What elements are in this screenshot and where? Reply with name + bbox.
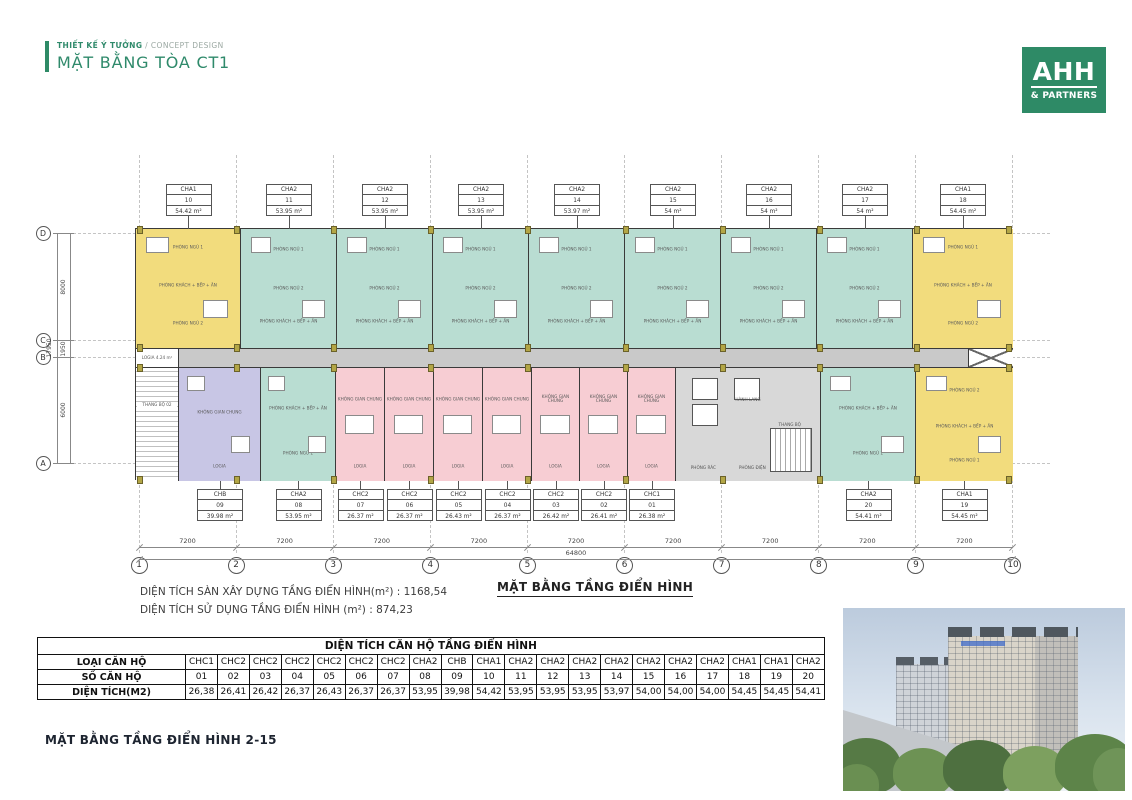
eyebrow-english: / CONCEPT DESIGN [142,41,223,50]
callout-area: 53.95 m² [277,512,321,522]
elevator [692,404,718,426]
dim-tick [53,463,74,464]
unit-callout-13: CHA21353.95 m² [458,184,504,216]
furniture [345,415,375,433]
cell-number-19: 19 [760,670,792,685]
callout-number: 04 [486,501,530,511]
unit-callout-05: CHC20526.43 m² [436,489,482,521]
callout-leader [188,216,189,229]
table-title: DIỆN TÍCH CĂN HỘ TẦNG ĐIỂN HÌNH [38,638,825,655]
furniture [588,415,617,433]
cell-number-03: 03 [249,670,281,685]
column-marker [234,476,240,484]
room-label: PHÒNG KHÁCH + BẾP + ĂN [340,319,429,324]
dim-label-bay: 7200 [168,537,208,545]
callout-area: 26.43 m² [437,512,481,522]
room-label: PHÒNG KHÁCH + BẾP + ĂN [916,284,1010,289]
callout-type: CHC2 [582,490,626,500]
cell-area-10: 54,42 [473,685,505,700]
callout-leader [963,216,964,229]
building-roof-main [948,627,1078,637]
cell-area-04: 26,37 [281,685,313,700]
cell-area-19: 54,45 [760,685,792,700]
cell-type-14: CHA2 [601,655,633,670]
room-label: KHÔNG GIAN CHUNG [629,395,673,405]
eyebrow-vietnamese: THIẾT KẾ Ý TƯỞNG [57,41,142,50]
column-marker [331,476,337,484]
furniture [398,300,421,318]
unit-CHA1-19: PHÒNG NGỦ 2PHÒNG KHÁCH + BẾP + ĂNPHÒNG N… [916,368,1013,481]
core-label: PHÒNG ĐIỆN [728,465,777,470]
apartment-area-table: DIỆN TÍCH CĂN HỘ TẦNG ĐIỂN HÌNHLOẠI CĂN … [37,637,825,700]
furniture [686,300,709,318]
column-marker [720,226,726,234]
unit-CHB-09: KHÔNG GIAN CHUNGLOGIA [179,368,261,481]
column-marker [817,226,823,234]
dim-label-total: 64800 [546,549,606,557]
room-label: KHÔNG GIAN CHUNG [181,411,257,416]
room-label: PHÒNG KHÁCH + BẾP + ĂN [824,406,912,411]
callout-leader [769,216,770,229]
room-label: PHÒNG NGỦ 2 [139,322,237,327]
cell-type-13: CHA2 [569,655,601,670]
cell-number-17: 17 [697,670,729,685]
cell-area-11: 53,95 [505,685,537,700]
unit-CHA2-14: PHÒNG NGỦ 1PHÒNG NGỦ 2PHÒNG KHÁCH + BẾP … [529,229,625,348]
callout-type: CHA2 [459,185,503,195]
room-label: PHÒNG KHÁCH + BẾP + ĂN [532,319,621,324]
room-label: KHÔNG GIAN CHUNG [581,395,625,405]
cell-number-13: 13 [569,670,601,685]
column-marker [914,476,920,484]
column-marker [137,226,143,234]
column-marker [331,344,337,352]
callout-area: 53.97 m² [555,207,599,217]
furniture [540,415,569,433]
callout-area: 54 m² [843,207,887,217]
callout-area: 39.98 m² [198,512,242,522]
sheet-caption: MẶT BẰNG TẦNG ĐIỂN HÌNH 2-15 [45,733,277,747]
callout-leader [673,216,674,229]
building-rendering [843,608,1125,791]
column-marker [234,344,240,352]
callout-number: 07 [339,501,383,511]
cell-area-09: 39,98 [441,685,473,700]
callout-number: 18 [941,196,985,206]
unit-CHC2-05: KHÔNG GIAN CHUNGLOGIA [434,368,483,481]
callout-type: CHA2 [843,185,887,195]
callout-leader [458,481,459,489]
room-label: KHÔNG GIAN CHUNG [386,397,431,402]
column-marker [817,364,823,372]
callout-leader [865,216,866,229]
cell-area-01: 26,38 [186,685,218,700]
cell-number-04: 04 [281,670,313,685]
unit-CHA1-18: PHÒNG NGỦ 1PHÒNG KHÁCH + BẾP + ĂNPHÒNG N… [913,229,1013,348]
unit-CHA2-15: PHÒNG NGỦ 1PHÒNG NGỦ 2PHÒNG KHÁCH + BẾP … [625,229,721,348]
page-title: MẶT BẰNG TÒA CT1 [57,53,230,72]
room-label: LOGIA [533,465,577,470]
furniture [827,237,848,252]
cell-type-12: CHA2 [537,655,569,670]
cell-type-10: CHA1 [473,655,505,670]
column-marker [137,476,143,484]
column-marker [1006,364,1012,372]
cell-area-03: 26,42 [249,685,281,700]
grid-bubble-A: A [36,456,51,471]
room-label: PHÒNG KHÁCH + BẾP + ĂN [139,284,237,289]
unit-callout-08: CHA20853.95 m² [276,489,322,521]
furniture [830,376,851,391]
callout-number: 08 [277,501,321,511]
cell-area-13: 53,95 [569,685,601,700]
cell-area-08: 53,95 [409,685,441,700]
dim-label-bay: 7200 [265,537,305,545]
callout-number: 09 [198,501,242,511]
cell-type-15: CHA2 [633,655,665,670]
furniture [443,237,464,252]
callout-area: 53.95 m² [267,207,311,217]
furniture [494,300,517,318]
furniture [146,237,169,252]
callout-leader [298,481,299,489]
cell-type-07: CHC2 [377,655,409,670]
room-label: PHÒNG KHÁCH + BẾP + ĂN [244,319,333,324]
cell-area-18: 54,45 [728,685,760,700]
corridor: LOGIA 4.24 m² [136,348,1013,368]
unit-callout-11: CHA21153.95 m² [266,184,312,216]
table-row-label-type: LOẠI CĂN HỘ [38,655,186,670]
building-roof-left [896,657,950,665]
room-label: LOGIA [629,465,673,470]
callout-number: 10 [167,196,211,206]
callout-type: CHC1 [630,490,674,500]
callout-number: 19 [943,501,987,511]
column-marker [137,344,143,352]
column-marker [623,344,629,352]
callout-number: 16 [747,196,791,206]
callout-type: CHC2 [339,490,383,500]
furniture [443,415,473,433]
room-label: PHÒNG NGỦ 2 [628,286,717,291]
cell-area-16: 54,00 [665,685,697,700]
room-label: PHÒNG KHÁCH + BẾP + ĂN [820,319,909,324]
room-label: PHÒNG NGỦ 2 [820,286,909,291]
callout-number: 17 [843,196,887,206]
furniture [492,415,522,433]
callout-type: CHA2 [651,185,695,195]
unit-CHC2-04: KHÔNG GIAN CHUNGLOGIA [483,368,532,481]
unit-callout-12: CHA21253.95 m² [362,184,408,216]
callout-leader [652,481,653,489]
room-label: LOGIA [386,465,431,470]
building-sign [961,641,1005,646]
callout-area: 54.42 m² [167,207,211,217]
callout-type: CHA2 [277,490,321,500]
logo-line1: AHH [1031,59,1098,88]
unit-callout-20: CHA22054.41 m² [846,489,892,521]
callout-leader [964,481,965,489]
unit-CHA2-16: PHÒNG NGỦ 1PHÒNG NGỦ 2PHÒNG KHÁCH + BẾP … [721,229,817,348]
room-label: LOGIA [435,465,480,470]
unit-callout-18: CHA11854.45 m² [940,184,986,216]
callout-leader [409,481,410,489]
header-eyebrow: THIẾT KẾ Ý TƯỞNG / CONCEPT DESIGN [57,41,230,50]
column-marker [1006,344,1012,352]
column-marker [914,364,920,372]
cell-type-18: CHA1 [728,655,760,670]
dim-line-rows-total [57,233,58,463]
cell-number-12: 12 [537,670,569,685]
column-marker [428,344,434,352]
callout-area: 54 m² [747,207,791,217]
ahh-partners-logo: AHH & PARTNERS [1022,47,1106,113]
column-marker [720,476,726,484]
cell-area-07: 26,37 [377,685,409,700]
core-label: THANG BỘ [762,422,817,427]
unit-CHC2-03: KHÔNG GIAN CHUNGLOGIA [532,368,580,481]
unit-CHC2-07: KHÔNG GIAN CHUNGLOGIA [336,368,385,481]
callout-number: 05 [437,501,481,511]
room-label: KHÔNG GIAN CHUNG [435,397,480,402]
unit-CHA2-13: PHÒNG NGỦ 1PHÒNG NGỦ 2PHÒNG KHÁCH + BẾP … [433,229,529,348]
unit-callout-15: CHA21554 m² [650,184,696,216]
callout-number: 15 [651,196,695,206]
callout-area: 54.41 m² [847,512,891,522]
dim-label-bay: 7200 [556,537,596,545]
room-label: PHÒNG NGỦ 2 [724,286,813,291]
cell-type-06: CHC2 [345,655,377,670]
column-marker [623,226,629,234]
cell-area-12: 53,95 [537,685,569,700]
cell-type-01: CHC1 [186,655,218,670]
dim-line-total [139,559,1013,560]
unit-callout-01: CHC10126.38 m² [629,489,675,521]
cell-type-20: CHA2 [792,655,824,670]
column-marker [623,476,629,484]
furniture [539,237,560,252]
dim-label-bay: 7200 [944,537,984,545]
furniture [636,415,665,433]
cell-type-16: CHA2 [665,655,697,670]
column-marker [234,226,240,234]
room-label: PHÒNG KHÁCH + BẾP + ĂN [919,424,1010,429]
furniture [635,237,656,252]
column-marker [428,226,434,234]
callout-type: CHA1 [167,185,211,195]
callout-leader [556,481,557,489]
cell-number-05: 05 [313,670,345,685]
column-marker [331,226,337,234]
room-label: PHÒNG KHÁCH + BẾP + ĂN [263,406,333,411]
furniture [231,436,250,453]
service-core: HÀNH LANGPHÒNG RÁCPHÒNG ĐIỆNTHANG BỘ [676,368,821,481]
column-marker [914,226,920,234]
room-label: KHÔNG GIAN CHUNG [533,395,577,405]
furniture [923,237,945,252]
cell-number-18: 18 [728,670,760,685]
callout-number: 02 [582,501,626,511]
room-label: LOGIA [484,465,529,470]
summary-line-2: DIỆN TÍCH SỬ DỤNG TẦNG ĐIỂN HÌNH (m²) : … [140,601,447,619]
cell-type-17: CHA2 [697,655,729,670]
callout-leader [481,216,482,229]
floor-plan: PHÒNG NGỦ 1PHÒNG KHÁCH + BẾP + ĂNPHÒNG N… [135,228,1012,480]
column-marker [525,364,531,372]
room-label: PHÒNG KHÁCH + BẾP + ĂN [628,319,717,324]
callout-leader [507,481,508,489]
callout-number: 01 [630,501,674,511]
callout-area: 53.95 m² [459,207,503,217]
furniture [203,300,228,318]
unit-callout-02: CHC20226.41 m² [581,489,627,521]
furniture [782,300,805,318]
callout-area: 26.37 m² [388,512,432,522]
unit-CHC2-06: KHÔNG GIAN CHUNGLOGIA [385,368,434,481]
cell-number-11: 11 [505,670,537,685]
cell-type-04: CHC2 [281,655,313,670]
unit-CHC1-01: KHÔNG GIAN CHUNGLOGIA [628,368,676,481]
furniture [302,300,325,318]
callout-type: CHA1 [941,185,985,195]
room-label: PHÒNG KHÁCH + BẾP + ĂN [724,319,813,324]
cell-area-06: 26,37 [345,685,377,700]
unit-callout-16: CHA21654 m² [746,184,792,216]
summary-line-1: DIỆN TÍCH SÀN XÂY DỰNG TẦNG ĐIỂN HÌNH(m²… [140,583,447,601]
column-marker [525,226,531,234]
cell-area-14: 53,97 [601,685,633,700]
room-label: PHÒNG NGỦ 2 [340,286,429,291]
furniture [978,436,1001,453]
room-label: PHÒNG KHÁCH + BẾP + ĂN [436,319,525,324]
unit-callout-03: CHC20326.42 m² [533,489,579,521]
furniture [251,237,272,252]
column-marker [428,476,434,484]
callout-type: CHC2 [534,490,578,500]
callout-number: 11 [267,196,311,206]
unit-callout-09: CHB0939.98 m² [197,489,243,521]
elevator [692,378,718,400]
column-marker [817,476,823,484]
furniture [268,376,284,391]
cell-number-08: 08 [409,670,441,685]
dim-label-bay: 7200 [459,537,499,545]
column-marker [817,344,823,352]
unit-callout-17: CHA21754 m² [842,184,888,216]
callout-area: 54.45 m² [943,512,987,522]
callout-area: 54 m² [651,207,695,217]
callout-type: CHC2 [437,490,481,500]
dim-label-bay: 7200 [362,537,402,545]
callout-leader [868,481,869,489]
callout-type: CHA2 [747,185,791,195]
callout-leader [577,216,578,229]
column-marker [1006,226,1012,234]
dim-label-row: 1950 [60,329,68,369]
area-summary: DIỆN TÍCH SÀN XÂY DỰNG TẦNG ĐIỂN HÌNH(m²… [140,583,447,619]
callout-area: 53.95 m² [363,207,407,217]
furniture [926,376,947,391]
cell-type-19: CHA1 [760,655,792,670]
callout-type: CHB [198,490,242,500]
cell-number-02: 02 [217,670,249,685]
cell-type-05: CHC2 [313,655,345,670]
room-label: LOGIA [337,465,382,470]
callout-type: CHA2 [847,490,891,500]
cell-number-16: 16 [665,670,697,685]
plan-title: MẶT BẰNG TẦNG ĐIỂN HÌNH [497,580,693,597]
dim-label-row: 8000 [60,267,68,307]
column-marker [331,364,337,372]
furniture [590,300,613,318]
cell-area-15: 54,00 [633,685,665,700]
dim-label-bay: 7200 [750,537,790,545]
callout-area: 26.38 m² [630,512,674,522]
cell-area-17: 54,00 [697,685,729,700]
grid-bubble-D: D [36,226,51,241]
column-marker [720,364,726,372]
cell-number-07: 07 [377,670,409,685]
unit-callout-10: CHA11054.42 m² [166,184,212,216]
cell-number-20: 20 [792,670,824,685]
callout-area: 26.41 m² [582,512,626,522]
furniture [394,415,424,433]
cell-area-05: 26,43 [313,685,345,700]
dim-label-row: 6000 [60,390,68,430]
callout-type: CHA1 [943,490,987,500]
callout-type: CHC2 [486,490,530,500]
cell-type-09: CHB [441,655,473,670]
core-label: HÀNH LANG [719,397,777,402]
callout-leader [220,481,221,489]
dim-label-bay: 7200 [653,537,693,545]
room-label: PHÒNG NGỦ 2 [532,286,621,291]
callout-leader [604,481,605,489]
room-label: PHÒNG NGỦ 1 [919,458,1010,463]
furniture [881,436,904,453]
room-label: KHÔNG GIAN CHUNG [484,397,529,402]
room-label: PHÒNG NGỦ 2 [436,286,525,291]
table-row-label-area: DIỆN TÍCH(M2) [38,685,186,700]
callout-number: 14 [555,196,599,206]
callout-number: 13 [459,196,503,206]
unit-callout-04: CHC20426.37 m² [485,489,531,521]
furniture [308,436,326,453]
unit-CHC2-02: KHÔNG GIAN CHUNGLOGIA [580,368,628,481]
room-label: KHÔNG GIAN CHUNG [337,397,382,402]
column-marker [914,344,920,352]
callout-area: 26.37 m² [486,512,530,522]
cell-number-15: 15 [633,670,665,685]
furniture [187,376,205,391]
callout-type: CHC2 [388,490,432,500]
callout-area: 26.42 m² [534,512,578,522]
unit-CHA2-11: PHÒNG NGỦ 1PHÒNG NGỦ 2PHÒNG KHÁCH + BẾP … [241,229,337,348]
concept-design-sheet: THIẾT KẾ Ý TƯỞNG / CONCEPT DESIGN MẶT BẰ… [0,0,1132,800]
unit-callout-14: CHA21453.97 m² [554,184,600,216]
column-marker [428,364,434,372]
column-marker [1006,476,1012,484]
stair-label: THANG BỘ 02 [137,402,177,407]
room-label: PHÒNG NGỦ 2 [916,322,1010,327]
callout-type: CHA2 [363,185,407,195]
unit-CHA1-10: PHÒNG NGỦ 1PHÒNG KHÁCH + BẾP + ĂNPHÒNG N… [136,229,241,348]
callout-number: 20 [847,501,891,511]
column-marker [525,344,531,352]
cell-type-11: CHA2 [505,655,537,670]
room-label: PHÒNG NGỦ 2 [244,286,333,291]
furniture [347,237,368,252]
